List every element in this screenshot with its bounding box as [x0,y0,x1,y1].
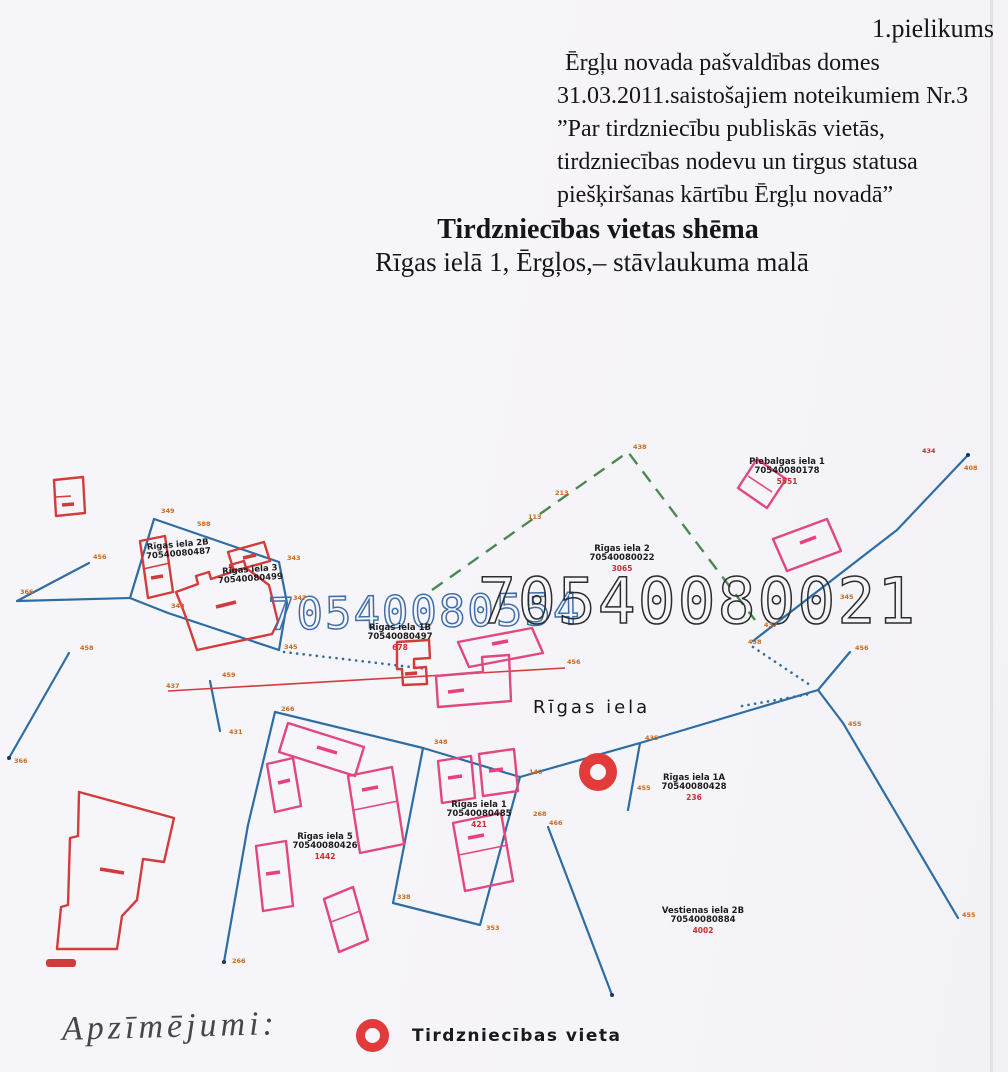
vertex-point-label: 588 [197,520,211,528]
document-title: Tirdzniecības vietas shēma [348,214,848,246]
vertex-point-label: 338 [397,893,411,901]
vertex-point-label: 466 [549,819,563,827]
vertex-point-label: 455 [637,784,651,792]
vertex-point-label: 438 [633,443,647,451]
parcel-area-note: 3065 [612,564,633,573]
cadastral-site-plan: 70540080554 70540080021 Rīgas iela Rīgas… [0,430,1008,1008]
parcel-area-note: 5551 [777,477,798,486]
parcel-label-group: Rīgas iela 370540080499 [217,563,283,586]
regulation-reference: Ērgļu novada pašvaldības domes 31.03.201… [557,47,968,212]
vertex-point-label: 437 [764,621,778,629]
trading-place-marker [585,759,612,786]
trading-place-symbol-icon [356,1019,389,1052]
red-number-smudge [46,959,76,967]
parcel-label-group: Vestienas iela 2B705400808844002 [662,906,744,935]
vertex-point-label: 458 [80,644,94,652]
building-outline [267,758,301,812]
scanned-document-page: 1.pielikums Ērgļu novada pašvaldības dom… [0,0,1008,1072]
parcel-cadastre-number: 70540080426 [292,841,357,851]
parcel-area-note: 1442 [315,852,336,861]
building-outline [773,519,841,571]
parcel-label-group: Rīgas iela 1B70540080497678 [367,623,432,652]
vertex-point-label: 349 [161,507,175,515]
building-outline [436,655,511,707]
vertex-point-label: 266 [232,957,246,965]
cadastral-number-black: 70540080021 [478,565,917,638]
vertex-point-label: 438 [748,638,762,646]
vertex-point-label: 348 [171,602,185,610]
vertex-point-label: 459 [222,671,236,679]
building-outline [479,749,518,796]
vertex-point-label: 113 [528,513,542,521]
parcel-cadastre-number: 70540080428 [661,782,726,792]
vertex-point-label: 345 [840,593,854,601]
parcel-labels: Rīgas iela 2B70540080487Rīgas iela 37054… [145,457,825,935]
vertex-point-label: 366 [14,757,28,765]
regulation-line: piešķiršanas kārtību Ērgļu novadā” [557,179,968,212]
parcel-label-group: Rīgas iela 2B70540080487 [145,537,212,562]
regulation-line: Ērgļu novada pašvaldības domes [557,47,968,80]
parcel-area-note: 421 [471,820,487,829]
vertex-point-label: 456 [93,553,107,561]
legend-item-label: Tirdzniecības vieta [412,1026,621,1046]
vertex-point-label: 431 [229,728,243,736]
vertex-point-label: 456 [567,658,581,666]
parcel-cadastre-number: 70540080884 [670,915,735,925]
vertex-point-label: 266 [281,705,295,713]
parcel-cadastre-number: 70540080497 [367,632,432,642]
building-outline [324,887,368,952]
vertex-point-label: 455 [962,911,976,919]
vertex-point-label: 456 [855,644,869,652]
vertex-point-label: 343 [287,554,301,562]
building-outline [438,756,475,803]
vertex-point-label: 268 [533,810,547,818]
regulation-line: ”Par tirdzniecību publiskās vietās, [557,113,968,146]
vertex-point-label: 455 [848,720,862,728]
legend-heading: Apzīmējumi: [62,1005,279,1049]
building-outline [256,841,293,911]
parcel-label-group: Piebalgas iela 1705400801785551 [749,457,825,486]
regulation-line: 31.03.2011.saistošajiem noteikumiem Nr.3 [557,80,968,113]
street-label: Rīgas iela [533,697,650,718]
vertex-point-label: 353 [486,924,500,932]
parcel-area-note: 678 [392,643,408,652]
regulation-line: tirdzniecības nodevu un tirgus statusa [557,146,968,179]
vertex-point-label: 213 [555,489,569,497]
parcel-boundary-lines [9,455,968,995]
vertex-point-label: 408 [964,464,978,472]
vertex-point-label: 347 [293,594,307,602]
vertex-point-label: 366 [20,588,34,596]
vertex-point-label: 345 [284,643,298,651]
parcel-cadastre-number: 70540080485 [446,809,511,819]
parcel-label-group: Rīgas iela 5705400804261442 [292,832,357,861]
vertex-point-label: 348 [434,738,448,746]
parcel-area-note: 4002 [693,926,714,935]
vertex-point-label: 434 [922,447,936,455]
vertex-point-label: 140 [529,768,543,776]
parcel-cadastre-number: 70540080178 [754,466,819,476]
document-subtitle: Rīgas ielā 1, Ērgļos,– stāvlaukuma malā [332,247,852,278]
parcel-label-group: Rīgas iela 1A70540080428236 [661,773,726,802]
vertex-point-label: 437 [166,682,180,690]
parcel-area-note: 236 [686,793,702,802]
vertex-point-label: 435 [645,734,659,742]
appendix-label: 1.pielikums [872,14,994,44]
boundary-endpoint-dots [7,453,970,997]
parcel-cadastre-number: 70540080022 [589,553,654,563]
